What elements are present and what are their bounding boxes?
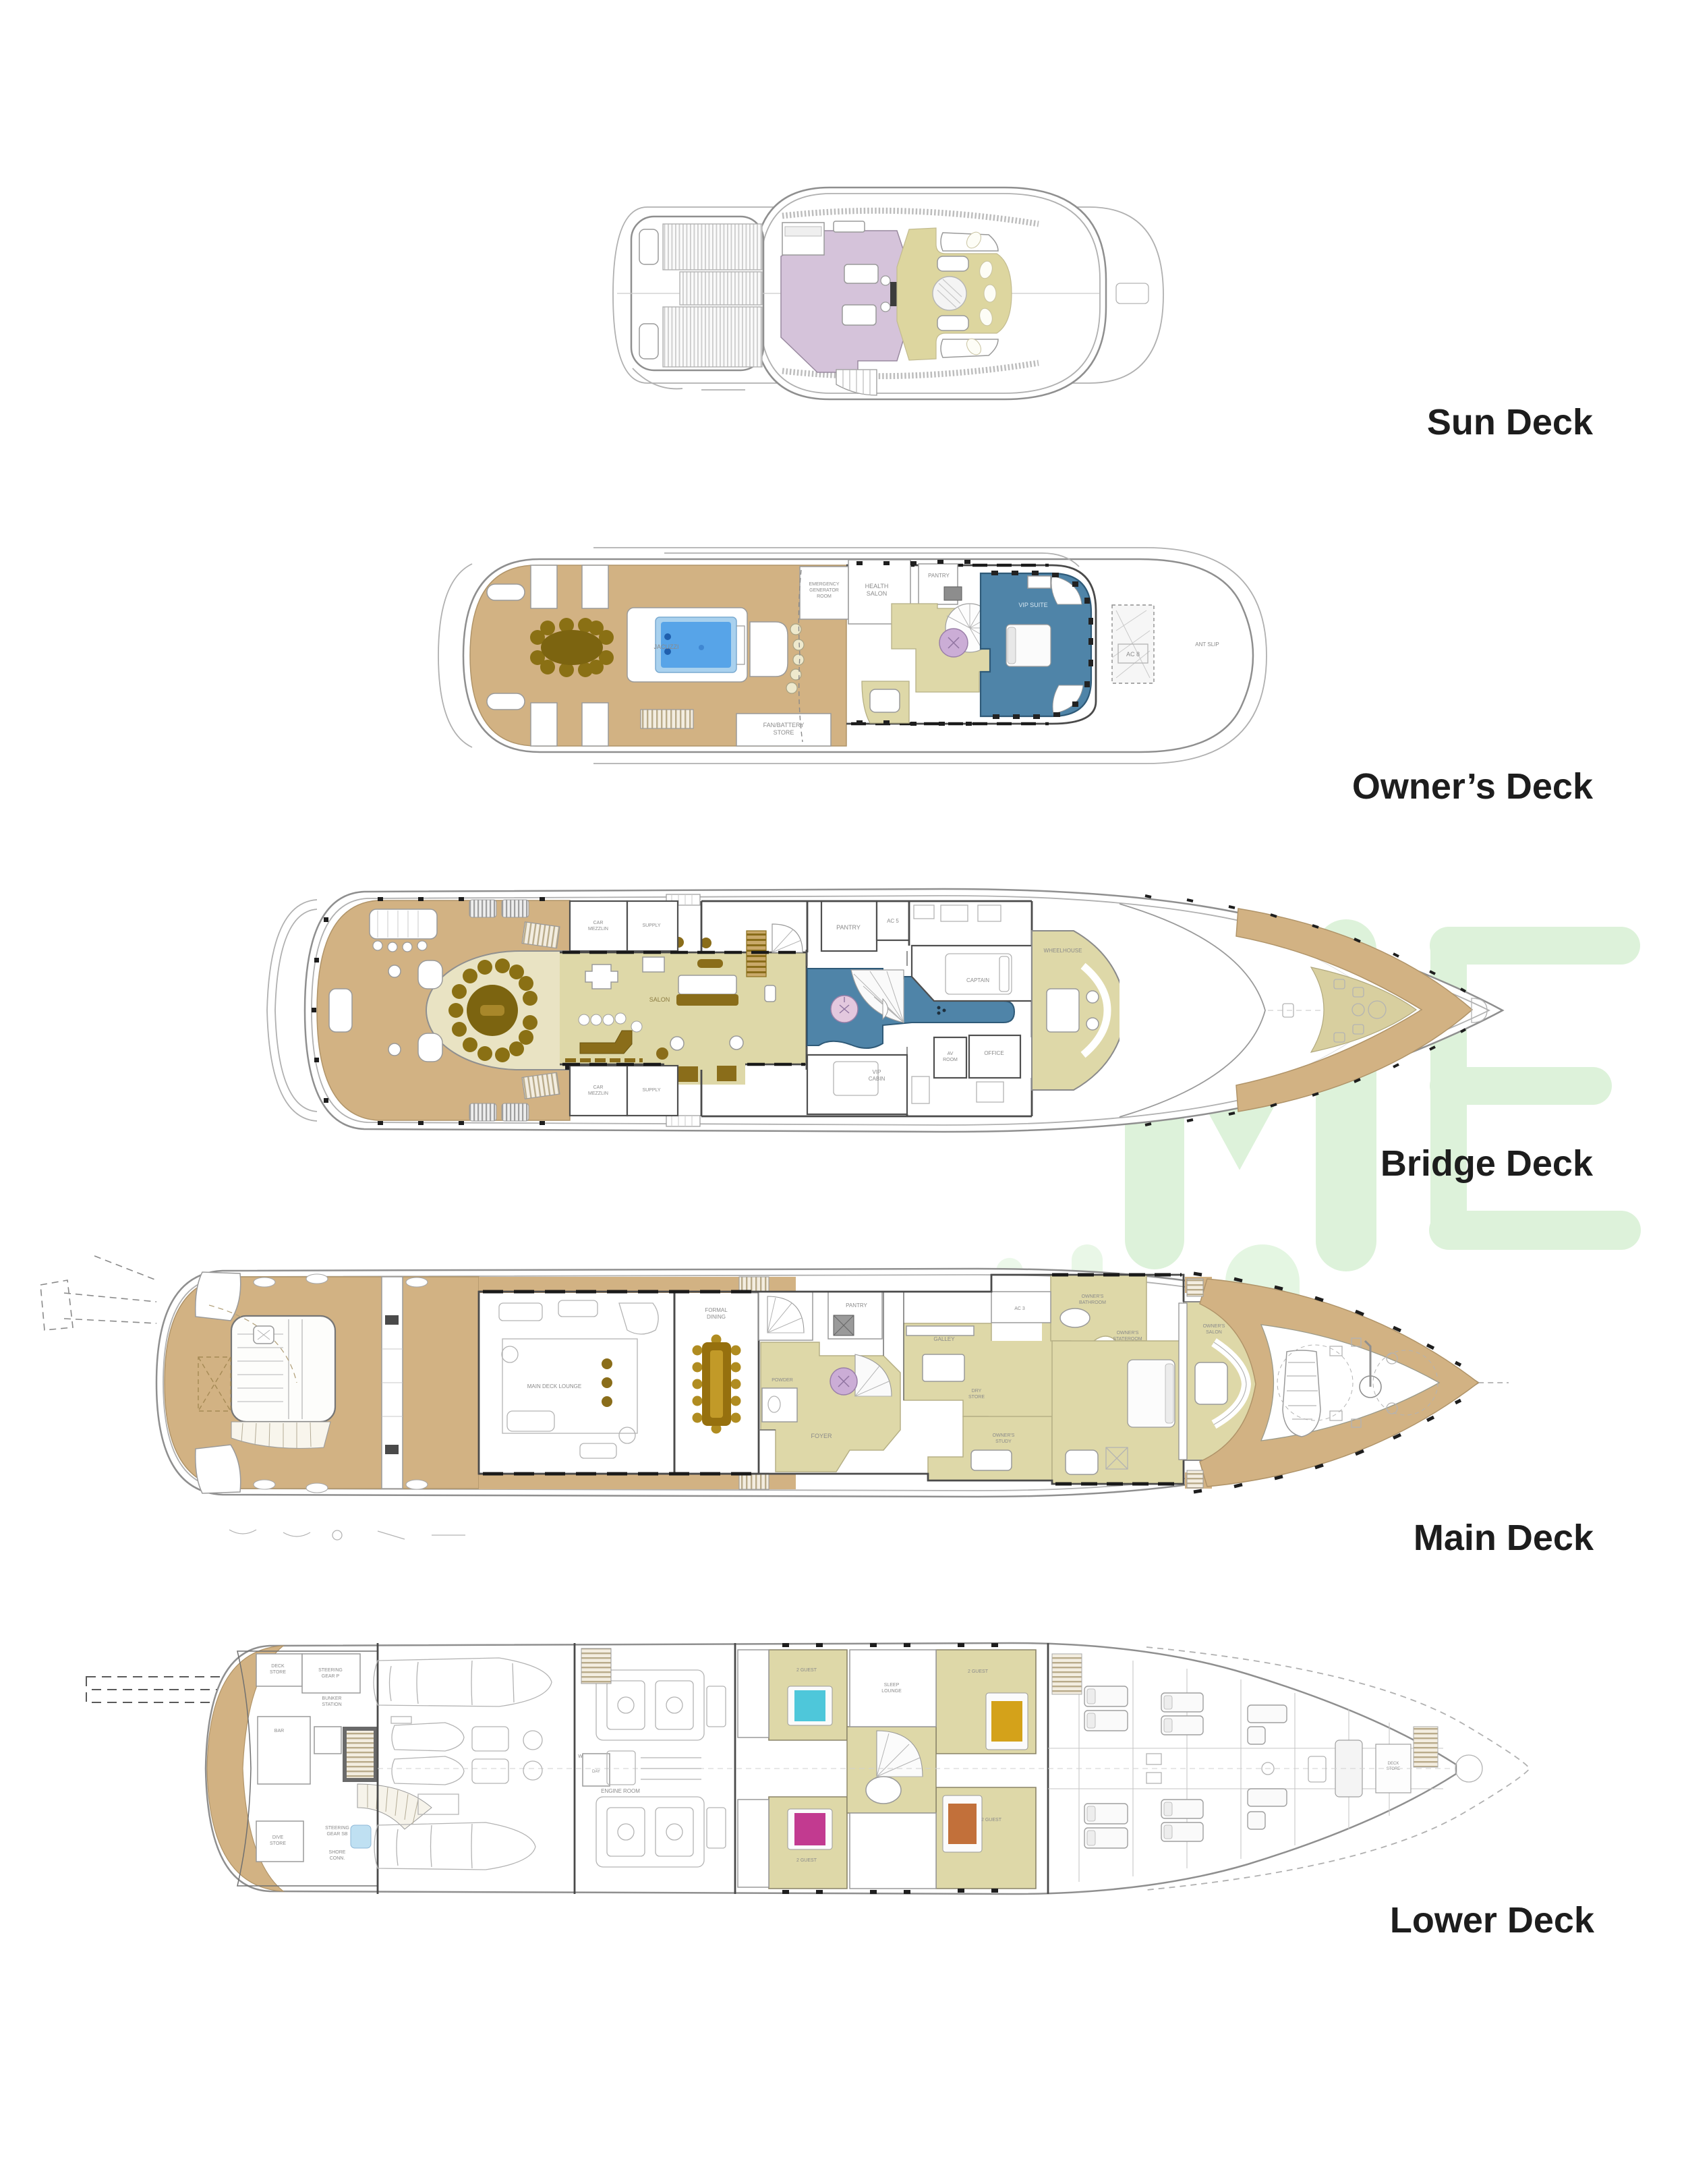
svg-text:Main Deck: Main Deck (1414, 1518, 1594, 1558)
svg-text:DRY: DRY (972, 1389, 982, 1393)
svg-text:STEERING: STEERING (325, 1826, 349, 1831)
svg-text:CONN.: CONN. (330, 1856, 345, 1861)
svg-text:FAN/BATTERY: FAN/BATTERY (763, 722, 805, 728)
svg-text:Owner’s Deck: Owner’s Deck (1352, 766, 1594, 807)
svg-text:LOUNGE: LOUNGE (881, 1689, 902, 1694)
svg-text:Lower Deck: Lower Deck (1390, 1900, 1595, 1941)
svg-text:STUDY: STUDY (995, 1439, 1012, 1444)
svg-text:BATHROOM: BATHROOM (1079, 1300, 1106, 1305)
svg-text:OFFICE: OFFICE (984, 1050, 1004, 1056)
svg-text:DINING: DINING (707, 1314, 726, 1320)
svg-text:OWNER'S: OWNER'S (993, 1433, 1015, 1438)
svg-text:2 GUEST: 2 GUEST (981, 1818, 1002, 1822)
svg-text:2 GUEST: 2 GUEST (796, 1668, 817, 1673)
svg-text:CABIN: CABIN (869, 1076, 885, 1082)
svg-text:HEALTH: HEALTH (865, 583, 889, 590)
svg-text:STORE: STORE (774, 729, 794, 736)
svg-text:SUPPLY: SUPPLY (642, 1088, 660, 1093)
svg-text:JACUZZI: JACUZZI (654, 643, 679, 650)
svg-text:SALON: SALON (649, 996, 670, 1003)
svg-text:PANTRY: PANTRY (846, 1302, 867, 1309)
svg-text:OWNER'S: OWNER'S (1117, 1331, 1139, 1335)
svg-text:Sun Deck: Sun Deck (1427, 402, 1594, 442)
svg-text:AC 8: AC 8 (1126, 651, 1140, 658)
svg-text:ROOM: ROOM (817, 594, 832, 599)
svg-text:DECK: DECK (271, 1664, 285, 1669)
svg-text:STORE: STORE (968, 1395, 985, 1400)
svg-text:CAR: CAR (593, 921, 604, 925)
svg-text:GEAR SB: GEAR SB (326, 1832, 347, 1837)
svg-text:STATEROOM: STATEROOM (1113, 1337, 1142, 1342)
svg-text:MEZZLIN: MEZZLIN (588, 927, 608, 931)
svg-text:WHEELHOUSE: WHEELHOUSE (1044, 948, 1082, 954)
svg-text:FOYER: FOYER (811, 1433, 832, 1439)
svg-text:ANT SLIP: ANT SLIP (1195, 641, 1219, 648)
svg-text:POWDER: POWDER (772, 1378, 793, 1383)
svg-text:STEERING: STEERING (318, 1668, 343, 1673)
svg-text:MEZZLIN: MEZZLIN (588, 1091, 608, 1096)
svg-text:STORE: STORE (270, 1841, 286, 1846)
svg-text:SLEEP: SLEEP (884, 1683, 900, 1688)
svg-text:STORE: STORE (1387, 1767, 1401, 1771)
svg-text:DECK: DECK (1388, 1762, 1399, 1766)
svg-text:2 GUEST: 2 GUEST (968, 1669, 989, 1674)
svg-text:STORE: STORE (270, 1670, 286, 1675)
svg-text:MAIN DECK LOUNGE: MAIN DECK LOUNGE (527, 1383, 581, 1389)
svg-text:SHORE: SHORE (329, 1850, 346, 1855)
svg-text:DIVE: DIVE (272, 1835, 284, 1840)
svg-text:GALLEY: GALLEY (933, 1336, 955, 1342)
svg-text:SALON: SALON (1206, 1330, 1222, 1335)
svg-text:OWNER'S: OWNER'S (1082, 1294, 1104, 1299)
svg-text:GENERATOR: GENERATOR (809, 588, 839, 593)
svg-text:STATION: STATION (322, 1702, 341, 1707)
svg-text:BAR: BAR (274, 1729, 284, 1733)
svg-text:ROOM: ROOM (943, 1058, 958, 1062)
svg-text:ENGINE ROOM: ENGINE ROOM (601, 1788, 640, 1794)
svg-text:CAR: CAR (593, 1085, 604, 1090)
svg-text:DAY: DAY (592, 1770, 600, 1774)
svg-text:AV: AV (948, 1052, 954, 1056)
svg-text:EMERGENCY: EMERGENCY (809, 582, 839, 587)
svg-text:AC 3: AC 3 (1014, 1306, 1025, 1311)
svg-text:BUNKER: BUNKER (322, 1696, 341, 1701)
svg-text:VIP: VIP (873, 1069, 881, 1075)
svg-text:PANTRY: PANTRY (836, 924, 861, 931)
svg-text:AC 5: AC 5 (887, 918, 899, 924)
svg-text:FORMAL: FORMAL (705, 1307, 728, 1313)
svg-text:GEAR P: GEAR P (322, 1674, 340, 1679)
svg-text:SALON: SALON (867, 590, 888, 597)
svg-text:2 GUEST: 2 GUEST (796, 1858, 817, 1863)
svg-text:VIP SUITE: VIP SUITE (1018, 602, 1047, 608)
svg-text:OWNER'S: OWNER'S (1203, 1324, 1225, 1329)
svg-text:Bridge Deck: Bridge Deck (1380, 1143, 1594, 1184)
svg-text:SUPPLY: SUPPLY (642, 923, 660, 928)
svg-text:CAPTAIN: CAPTAIN (966, 977, 989, 983)
svg-text:PANTRY: PANTRY (928, 573, 950, 579)
